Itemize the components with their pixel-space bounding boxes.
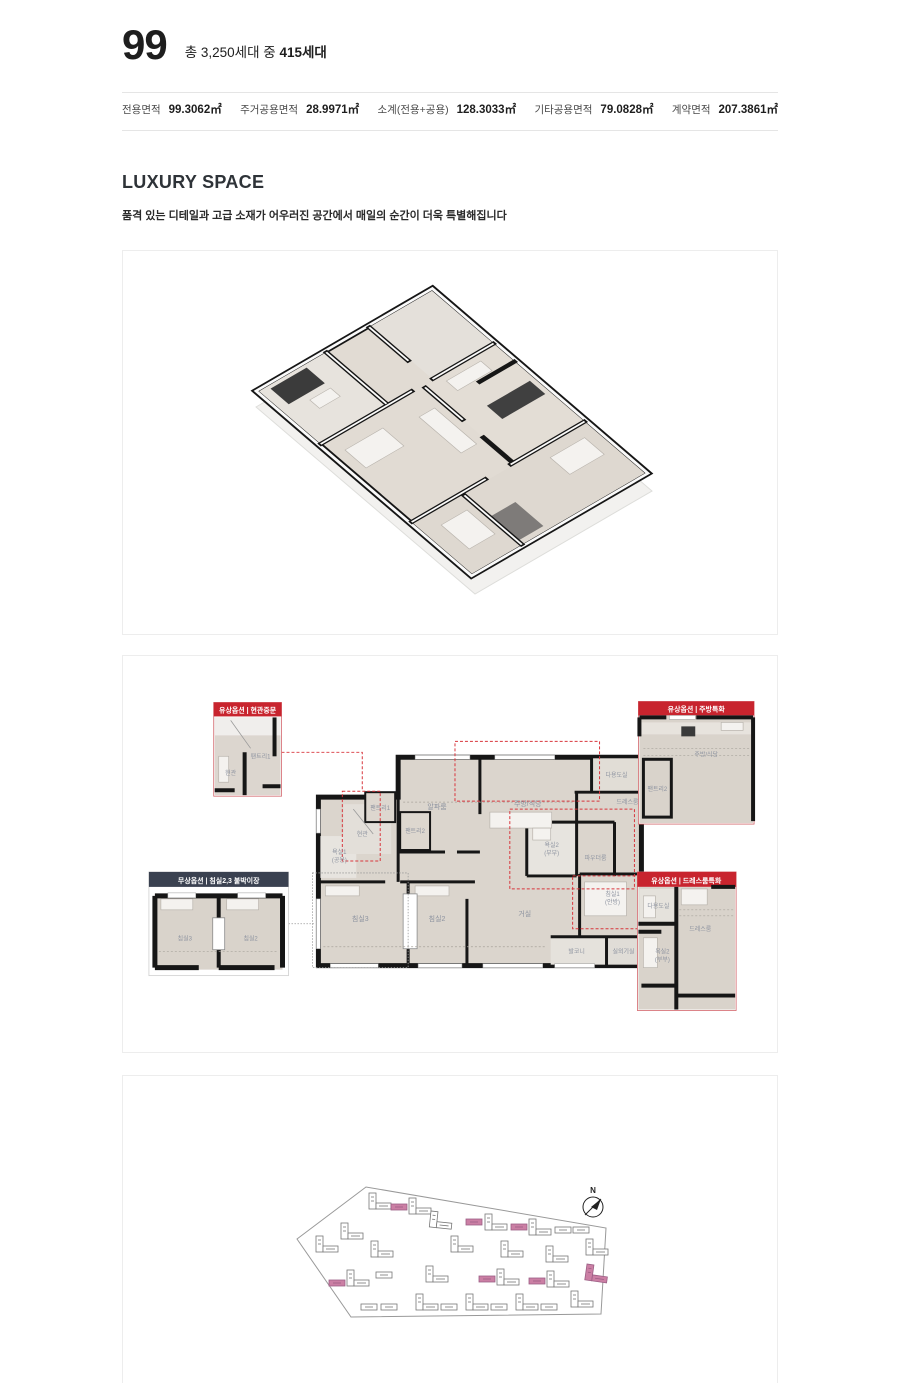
spec-label: 기타공용면적 <box>534 102 592 117</box>
unit-type-number: 99 <box>122 24 167 66</box>
household-count: 총 3,250세대 중 415세대 <box>185 41 327 66</box>
spec-value: 207.3861㎡ <box>719 101 778 117</box>
household-prefix: 총 3,250세대 중 <box>185 45 276 60</box>
callout-builtin-closet-title: 무상옵션 | 침실2,3 붙박이장 <box>178 876 260 885</box>
compass-icon: N <box>583 1186 603 1217</box>
room-label-powder: 파우더룸 <box>585 854 607 862</box>
section-title: LUXURY SPACE <box>122 172 264 193</box>
spec-contract-area: 계약면적 207.3861㎡ <box>672 101 778 117</box>
unitplan-options-svg: 알파룸 주방/식당 다용도실 드레스룸 팬트리1 팬트리2 현관 욕실1 (공용… <box>123 656 777 1052</box>
callout-entrance-door-title: 유상옵션 | 현관중문 <box>219 705 277 714</box>
unit-type-page: 99 총 3,250세대 중 415세대 전용면적 99.3062㎡ 주거공용면… <box>0 0 900 1383</box>
spec-label: 주거공용면적 <box>240 102 298 117</box>
callout-dressroom-upgrade-title: 유상옵션 | 드레스룸특화 <box>651 876 722 885</box>
callout-dressroom-upgrade: 유상옵션 | 드레스룸특화 다용도실 드레스룸 욕실2 <box>637 872 736 1011</box>
mini-label-pantry2: 팬트리2 <box>647 785 667 793</box>
room-label-bath1: 욕실1 <box>332 848 347 856</box>
room-label-entry: 현관 <box>357 830 368 838</box>
spec-exclusive-area: 전용면적 99.3062㎡ <box>122 101 222 117</box>
spec-label: 소계(전용+공용) <box>378 102 449 117</box>
room-label-dress: 드레스룸 <box>616 798 638 806</box>
isometric-floorplan-svg <box>123 251 777 634</box>
mini-label-dress: 드레스룸 <box>689 925 711 933</box>
callout-kitchen-upgrade: 유상옵션 | 주방특화 주방/식당 팬트리2 <box>638 701 754 824</box>
siteplan-image: N <box>122 1075 778 1383</box>
spec-label: 계약면적 <box>672 102 711 117</box>
mini-label-utility: 다용도실 <box>647 902 669 910</box>
spec-residential-common-area: 주거공용면적 28.9971㎡ <box>240 101 359 117</box>
spec-subtotal-area: 소계(전용+공용) 128.3033㎡ <box>378 101 517 117</box>
household-bold: 415세대 <box>279 45 326 60</box>
unitplan-options-image: 알파룸 주방/식당 다용도실 드레스룸 팬트리1 팬트리2 현관 욕실1 (공용… <box>122 655 778 1053</box>
mini-label-bath2: 욕실2 <box>655 948 670 956</box>
mini-label-entry: 현관 <box>225 769 236 777</box>
room-label-utility: 다용도실 <box>606 771 628 779</box>
spec-value: 28.9971㎡ <box>306 101 359 117</box>
mini-label-bed3: 침실3 <box>178 935 193 943</box>
mini-label-kitchen: 주방/식당 <box>694 750 718 758</box>
room-label-bath2: 욕실2 <box>545 841 560 849</box>
mini-label-bed2: 침실2 <box>243 935 258 943</box>
isometric-floorplan-image <box>122 250 778 635</box>
divider-top <box>122 92 778 93</box>
room-label-bath2-sub: (부부) <box>544 850 559 857</box>
room-label-bed2: 침실2 <box>429 914 446 923</box>
callout-entrance-door: 유상옵션 | 현관중문 팬트리1 현관 <box>214 702 282 796</box>
compass-north-label: N <box>590 1186 596 1195</box>
page-header: 99 총 3,250세대 중 415세대 <box>122 24 327 66</box>
room-label-bath1-sub: (공용) <box>332 857 347 864</box>
room-label-bed1: 침실1 <box>605 890 620 898</box>
spec-label: 전용면적 <box>122 102 161 117</box>
room-label-outdoor-unit: 실외기실 <box>612 948 634 956</box>
room-label-balcony: 발코니 <box>568 948 584 956</box>
room-label-alpha: 알파룸 <box>427 802 447 811</box>
room-label-bed3: 침실3 <box>352 914 369 923</box>
area-specs-row: 전용면적 99.3062㎡ 주거공용면적 28.9971㎡ 소계(전용+공용) … <box>122 101 778 117</box>
callout-builtin-closet: 무상옵션 | 침실2,3 붙박이장 침실3 침실2 <box>149 872 289 976</box>
spec-value: 128.3033㎡ <box>457 101 516 117</box>
room-label-pantry2: 팬트리2 <box>405 827 425 835</box>
divider-bottom <box>122 130 778 131</box>
room-label-living: 거실 <box>518 909 531 918</box>
main-unit-plan: 알파룸 주방/식당 다용도실 드레스룸 팬트리1 팬트리2 현관 욕실1 (공용… <box>312 741 641 967</box>
spec-value: 79.0828㎡ <box>600 101 653 117</box>
spec-other-common-area: 기타공용면적 79.0828㎡ <box>534 101 653 117</box>
room-label-pantry1: 팬트리1 <box>370 804 390 812</box>
room-label-kitchen: 주방/식당 <box>514 799 542 808</box>
spec-value: 99.3062㎡ <box>169 101 222 117</box>
siteplan-svg: N <box>123 1076 777 1383</box>
room-label-bed1-sub: (안방) <box>605 898 620 906</box>
mini-label-pantry1: 팬트리1 <box>251 752 271 760</box>
mini-label-bath2-sub: (부부) <box>655 957 670 964</box>
callout-kitchen-upgrade-title: 유상옵션 | 주방특화 <box>668 704 726 713</box>
section-subtitle: 품격 있는 디테일과 고급 소재가 어우러진 공간에서 매일의 순간이 더욱 특… <box>122 207 507 223</box>
